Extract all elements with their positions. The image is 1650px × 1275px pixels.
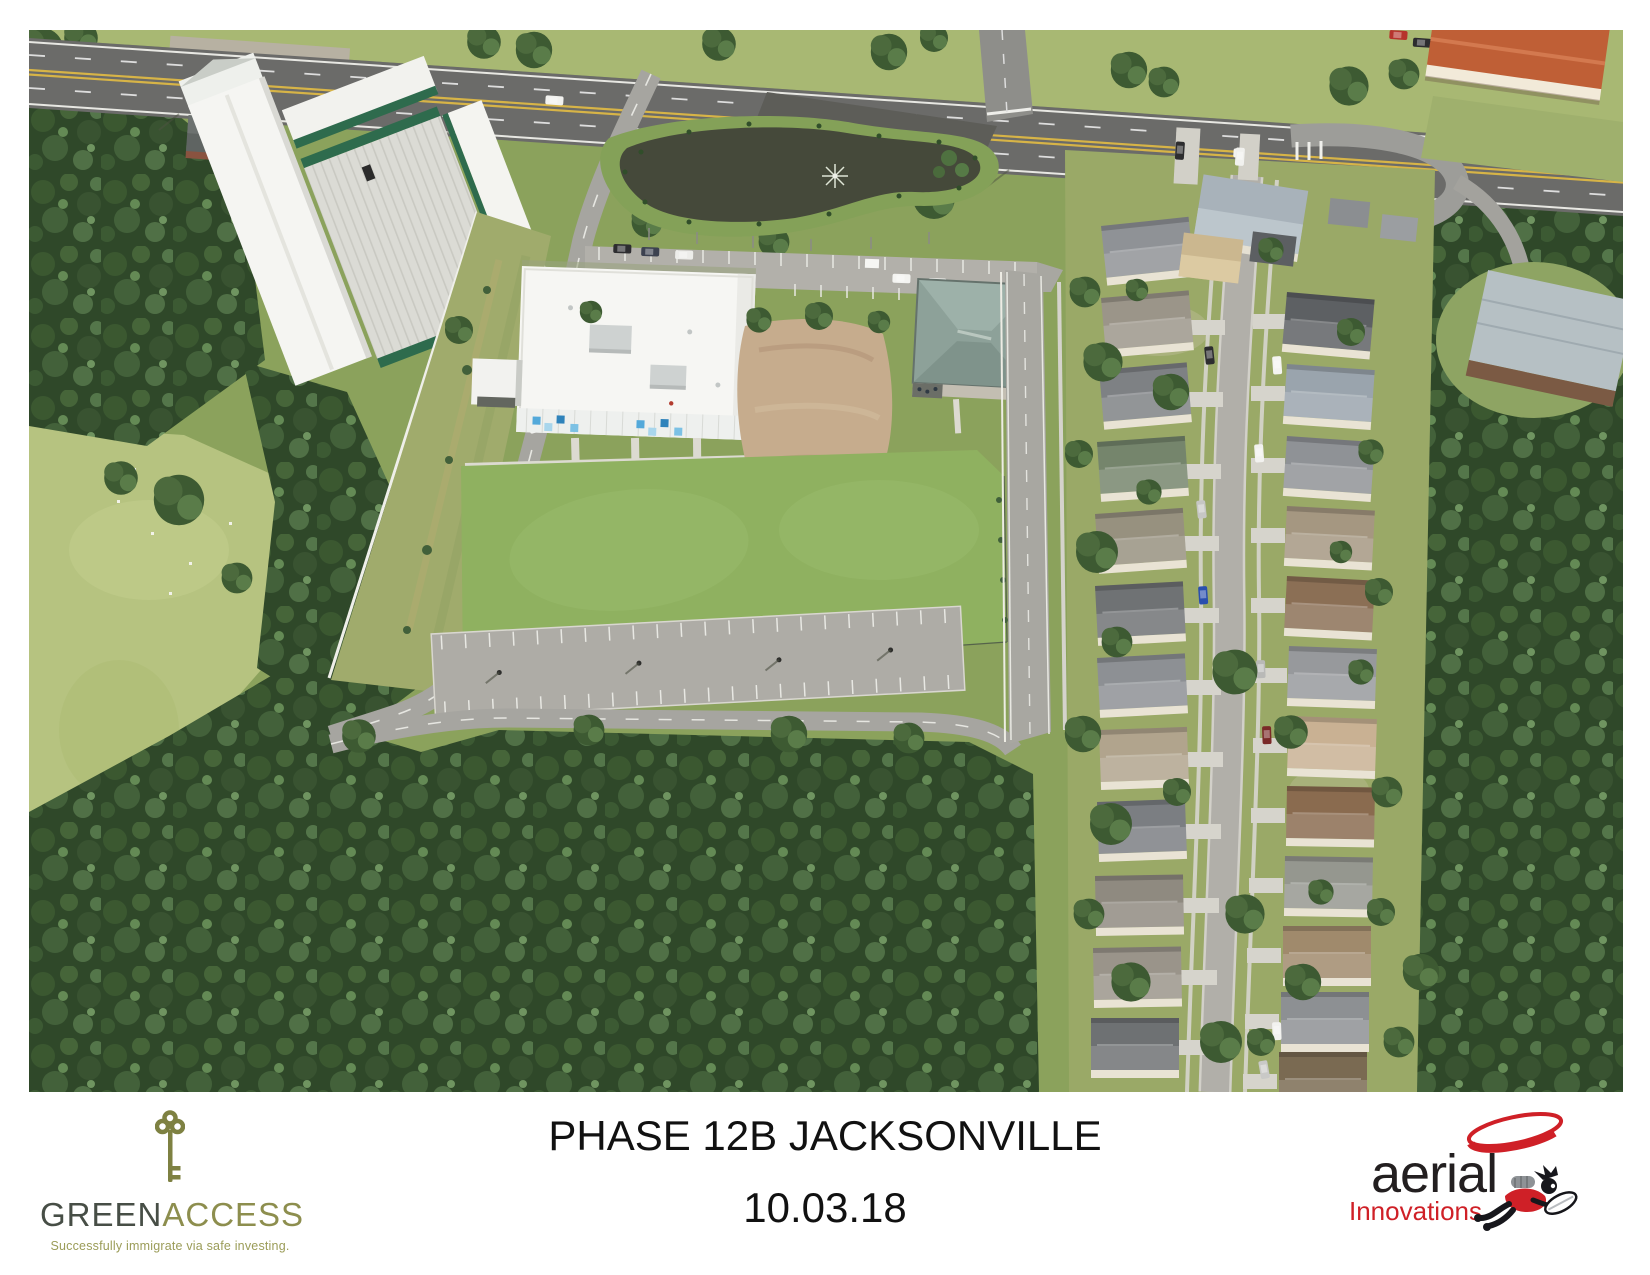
page: { "page": { "background_color": "#ffffff… — [0, 0, 1650, 1275]
aerial-innovations-logo: aerial Innovations — [1345, 1098, 1603, 1248]
aerial-wordmark: aerial — [1371, 1144, 1497, 1204]
fountain — [822, 164, 848, 188]
aerial-photo — [29, 30, 1623, 1092]
residential-area — [1065, 127, 1435, 1092]
side-street-top — [979, 30, 1033, 122]
entry-canopy — [471, 358, 523, 408]
metal-roof-building — [1436, 262, 1623, 418]
innovations-wordmark: Innovations — [1349, 1196, 1482, 1226]
greenaccess-tagline: Successfully immigrate via safe investin… — [40, 1239, 300, 1253]
